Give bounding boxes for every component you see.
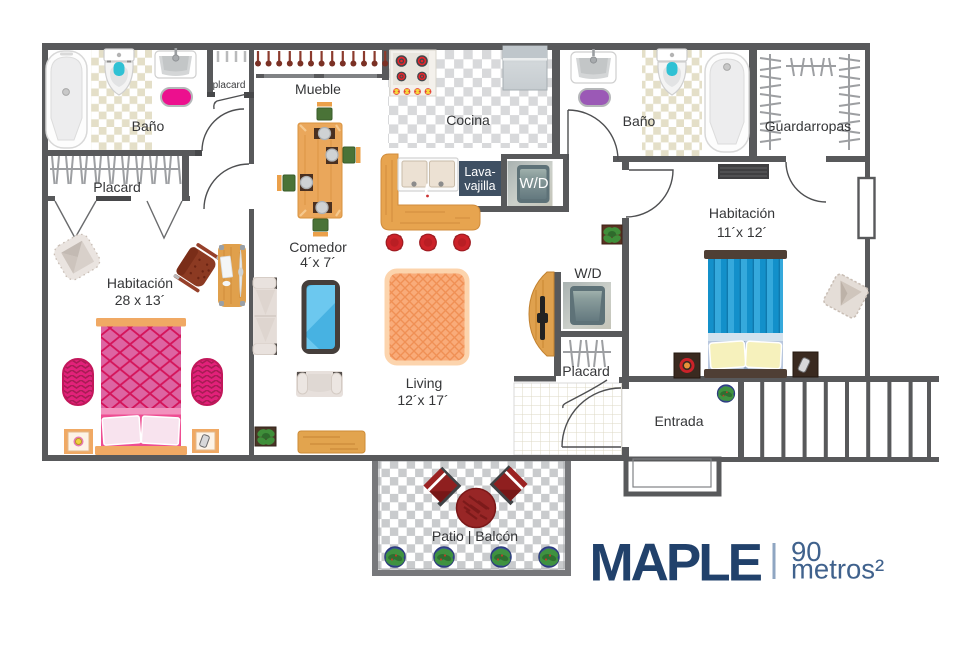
- svg-text:Patio | Balcón: Patio | Balcón: [432, 528, 518, 544]
- svg-text:placard: placard: [213, 80, 246, 91]
- svg-text:4´x 7´: 4´x 7´: [300, 254, 336, 270]
- svg-text:MAPLE: MAPLE: [590, 534, 762, 593]
- svg-text:12´x 17´: 12´x 17´: [397, 392, 448, 408]
- svg-text:11´x 12´: 11´x 12´: [717, 224, 767, 240]
- svg-text:Guardarropas: Guardarropas: [765, 118, 851, 134]
- svg-text:vajilla: vajilla: [464, 179, 495, 193]
- svg-text:W/D: W/D: [519, 175, 548, 192]
- svg-text:Comedor: Comedor: [289, 239, 347, 255]
- svg-text:W/D: W/D: [574, 265, 601, 281]
- svg-text:Placard: Placard: [562, 363, 609, 379]
- svg-text:Entrada: Entrada: [654, 413, 703, 429]
- svg-text:Living: Living: [406, 375, 443, 391]
- svg-text:Baño: Baño: [132, 118, 165, 134]
- svg-text:Placard: Placard: [93, 179, 140, 195]
- svg-text:Cocina: Cocina: [446, 112, 490, 128]
- svg-text:28 x 13´: 28 x 13´: [115, 292, 166, 308]
- svg-text:Habitación: Habitación: [709, 205, 775, 221]
- svg-text:Habitación: Habitación: [107, 275, 173, 291]
- svg-text:Lava-: Lava-: [464, 165, 495, 179]
- svg-text:Mueble: Mueble: [295, 81, 341, 97]
- svg-text:metros²: metros²: [791, 554, 884, 585]
- svg-text:Baño: Baño: [623, 113, 656, 129]
